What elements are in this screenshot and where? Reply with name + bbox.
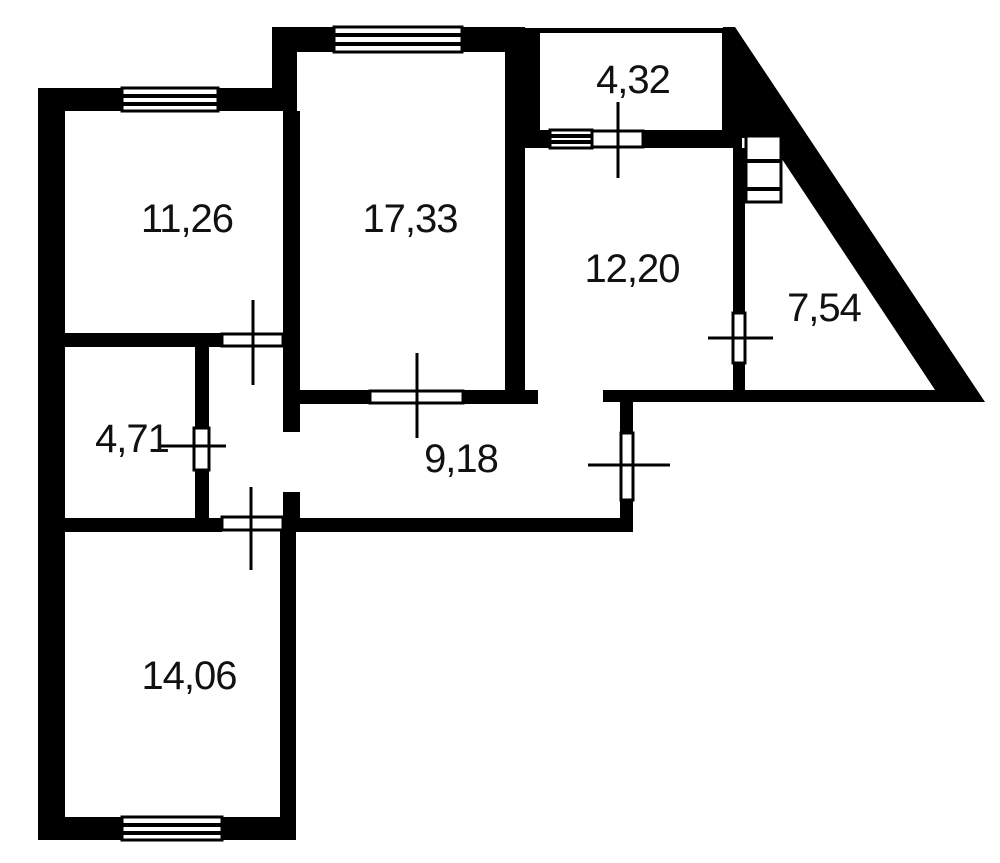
wall-corridor-top-left: [295, 390, 370, 404]
wall-balcony-top-thin: [533, 28, 727, 33]
room-label-4-71: 4,71: [95, 417, 169, 461]
wall-room3-balcony-lower: [733, 363, 745, 402]
window-frame: [746, 136, 781, 202]
wall-room3-bottom: [603, 390, 973, 402]
room-label-14-06: 14,06: [141, 654, 236, 698]
wall-room1-bottom-nub: [282, 333, 300, 347]
room-label-4-32: 4,32: [596, 58, 670, 102]
wall-room4-right: [280, 518, 296, 840]
wall-divider-room1-room2: [283, 111, 300, 432]
floor-plan: 11,26 17,33 4,32 12,20 7,54 4,71 9,18 14…: [0, 0, 1000, 863]
wall-entry-above-door: [620, 402, 633, 433]
wall-corridor-top-right: [463, 390, 538, 404]
room-label-11-26: 11,26: [141, 197, 233, 241]
wall-small-room-right-upper: [195, 347, 209, 428]
window-room2-top: [334, 27, 462, 52]
floor-plan-svg: 11,26 17,33 4,32 12,20 7,54 4,71 9,18 14…: [0, 0, 1000, 863]
wall-balcony-band-left: [505, 130, 550, 148]
room-label-9-18: 9,18: [424, 437, 498, 481]
wall-step-connector: [272, 27, 297, 111]
wall-room3-balcony-upper: [733, 148, 745, 313]
room-label-17-33: 17,33: [362, 197, 457, 241]
window-frame: [334, 27, 462, 52]
wall-corridor-bottom-right: [283, 518, 633, 532]
wall-room1-bottom-left: [38, 333, 223, 347]
window-triangle-balcony: [746, 136, 781, 202]
room-label-12-20: 12,20: [584, 247, 679, 291]
window-balcony-band: [550, 130, 592, 148]
wall-left-outer: [38, 88, 65, 840]
window-frame: [550, 130, 592, 148]
window-room4-bottom: [122, 817, 222, 840]
window-frame: [122, 817, 222, 840]
window-frame: [122, 88, 218, 111]
wall-room2-right: [505, 27, 525, 392]
wall-corridor-bottom-left: [38, 518, 222, 532]
door-leaf: [194, 428, 209, 470]
room-label-7-54: 7,54: [787, 286, 862, 330]
window-room1-top: [122, 88, 218, 111]
wall-entry-below-door: [620, 500, 633, 518]
